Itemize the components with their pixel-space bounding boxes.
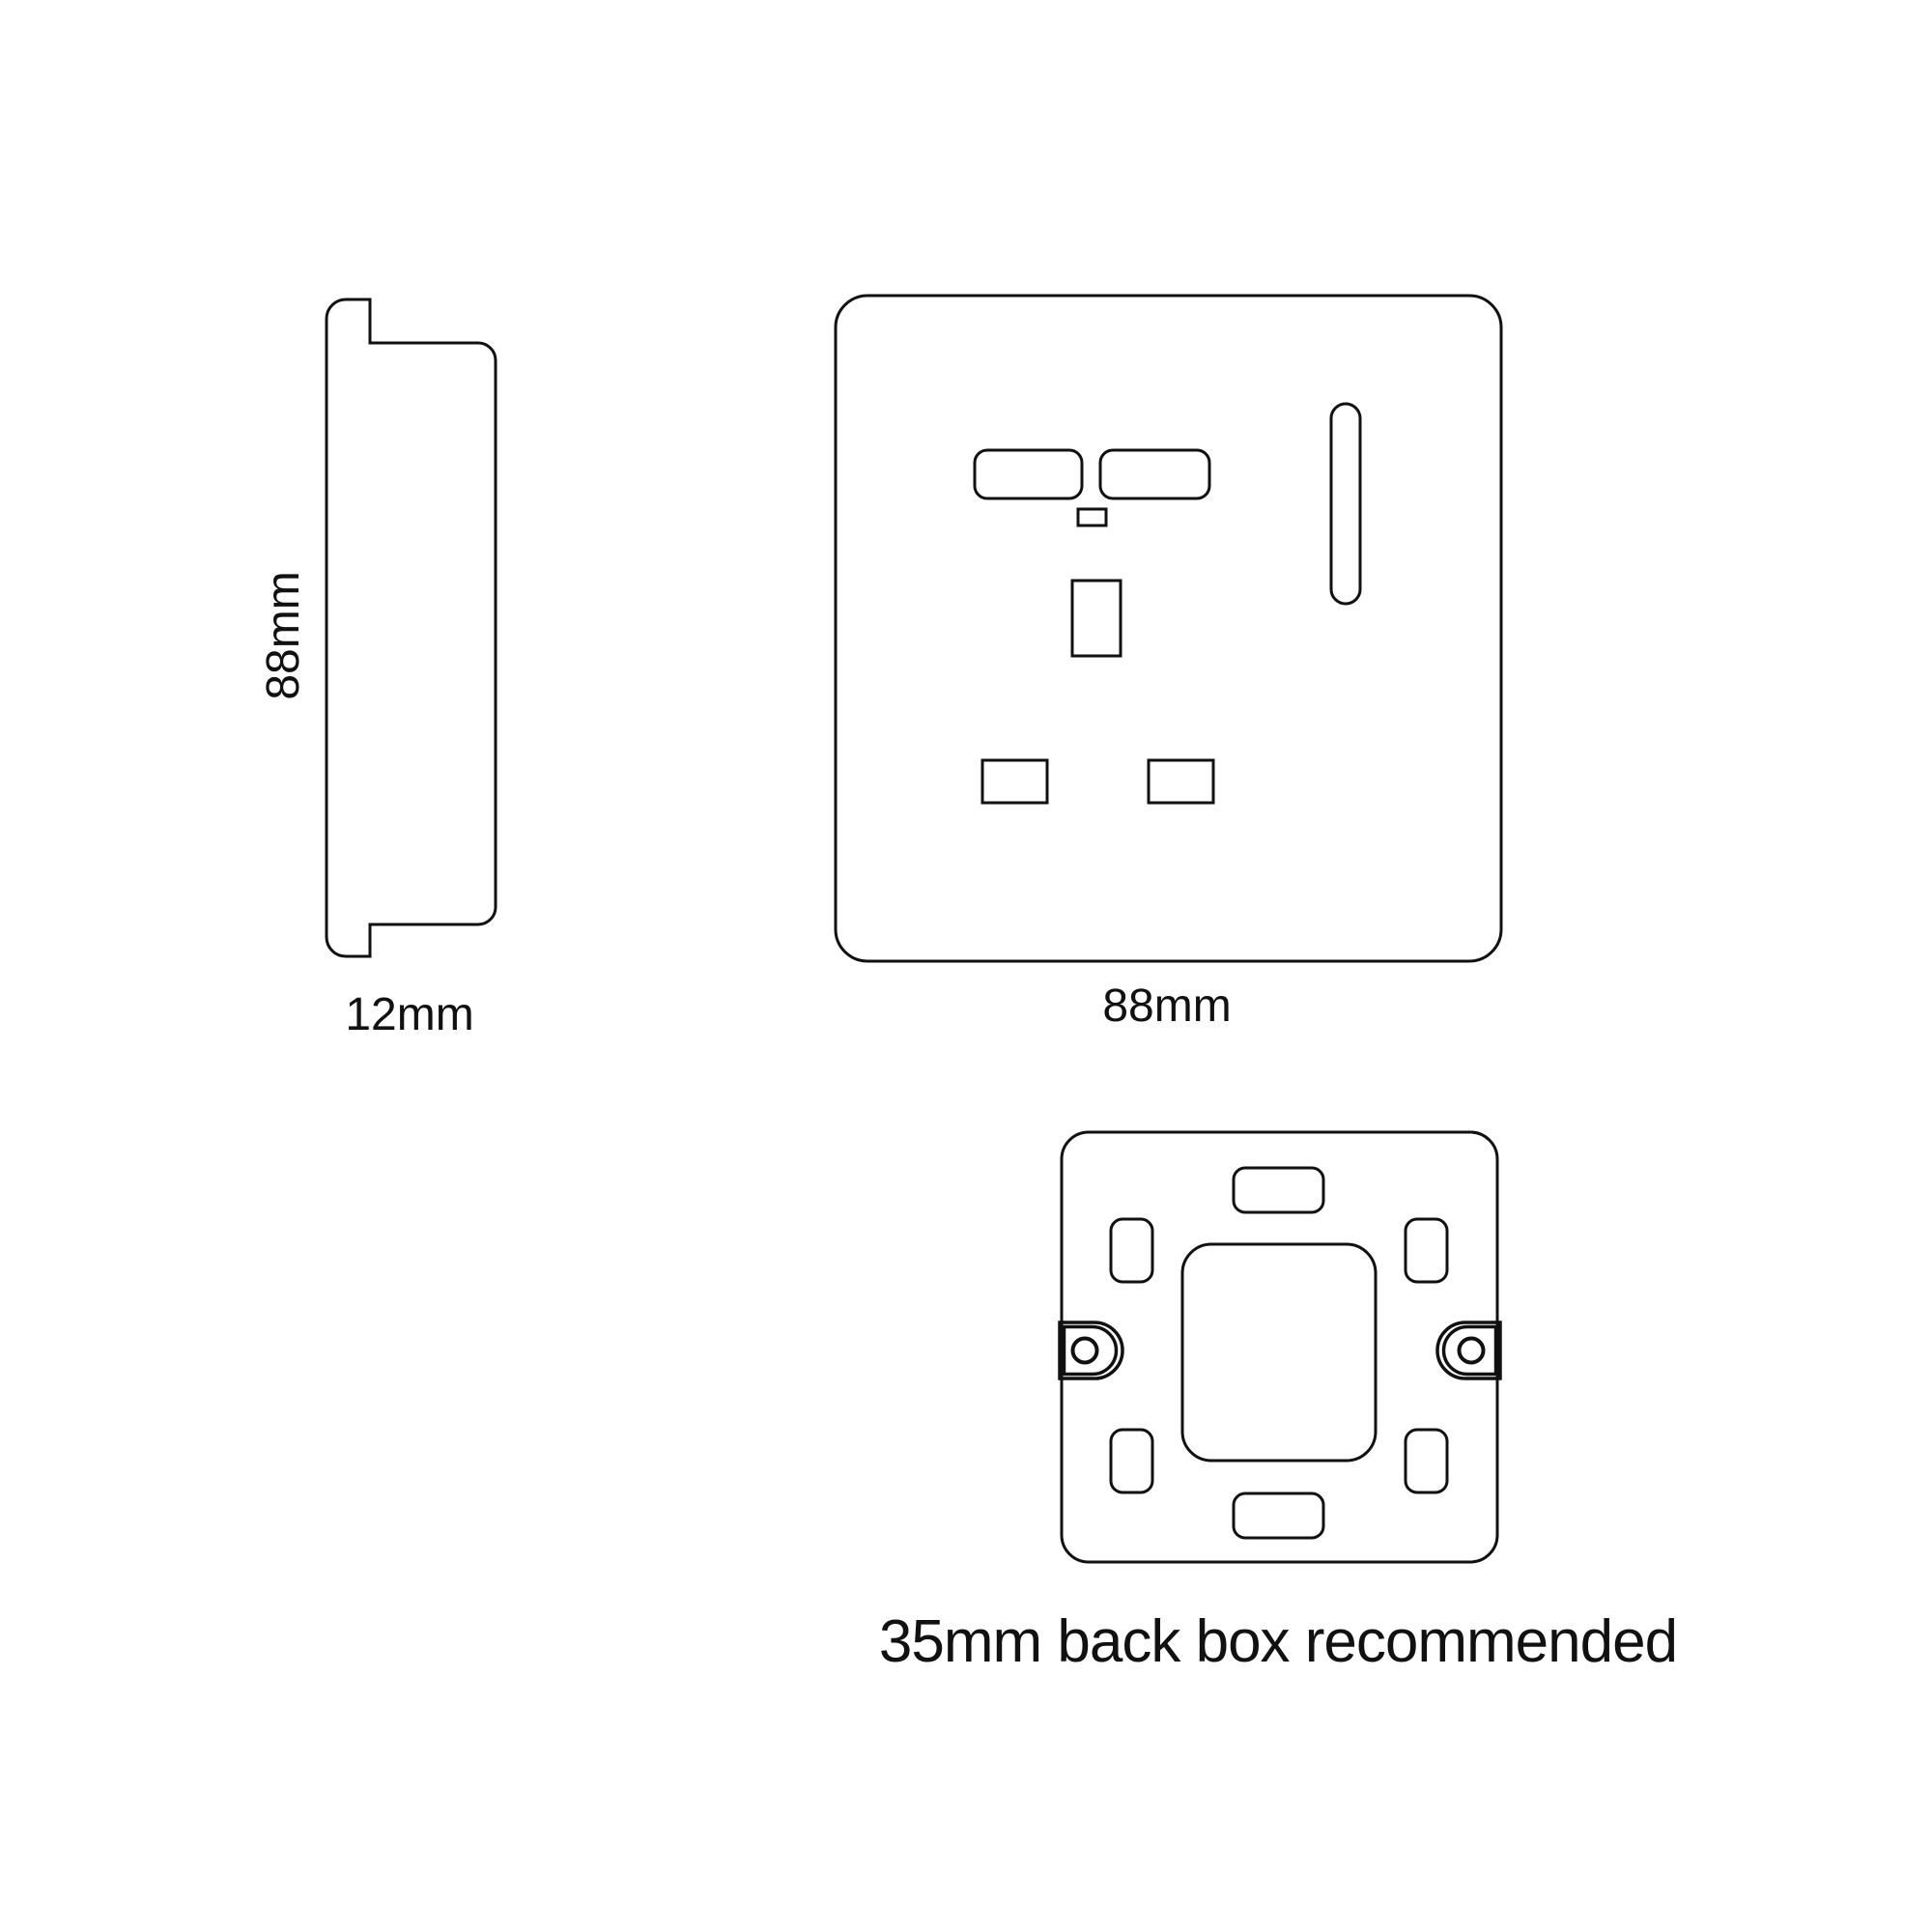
backplate-center-opening: [1182, 1244, 1376, 1461]
live-pin-aperture: [982, 760, 1047, 803]
knockout-top-center: [1234, 1168, 1323, 1212]
screw-hole-left: [1073, 1339, 1097, 1363]
aperture-top-left: [975, 450, 1082, 498]
side-depth-dimension-label: 12mm: [345, 992, 473, 1038]
side-profile-view: [327, 299, 496, 956]
screw-lug-right-outer: [1437, 1322, 1500, 1378]
back-box-recommendation-note: 35mm back box recommended: [879, 1612, 1677, 1672]
screw-lug-right: [1437, 1322, 1500, 1378]
side-height-dimension-label: 88mm: [261, 571, 307, 699]
knockout-top-left: [1111, 1219, 1152, 1282]
screw-lug-left: [1060, 1322, 1122, 1378]
indicator-window: [1078, 509, 1106, 526]
front-width-dimension-label: 88mm: [1102, 983, 1231, 1030]
dimension-diagram: 88mm 12mm 88mm 35mm back box recommended: [0, 0, 1932, 1932]
side-profile-outline: [327, 299, 496, 956]
earth-pin-aperture: [1072, 581, 1121, 656]
backplate-outline: [1062, 1132, 1497, 1562]
screw-lug-right-inner: [1444, 1327, 1496, 1375]
knockout-bottom-left: [1111, 1430, 1152, 1492]
knockout-bottom-right: [1406, 1430, 1447, 1492]
faceplate-outline: [836, 296, 1501, 961]
screw-lug-left-outer: [1060, 1322, 1122, 1378]
neutral-pin-aperture: [1149, 760, 1213, 803]
knockout-top-right: [1406, 1219, 1447, 1282]
aperture-top-right: [1100, 450, 1209, 498]
screw-hole-right: [1460, 1339, 1484, 1363]
knockout-bottom-center: [1234, 1493, 1323, 1538]
backplate-view: [1060, 1132, 1500, 1562]
rocker-switch-slot: [1331, 404, 1360, 604]
faceplate-front-view: [836, 296, 1501, 961]
